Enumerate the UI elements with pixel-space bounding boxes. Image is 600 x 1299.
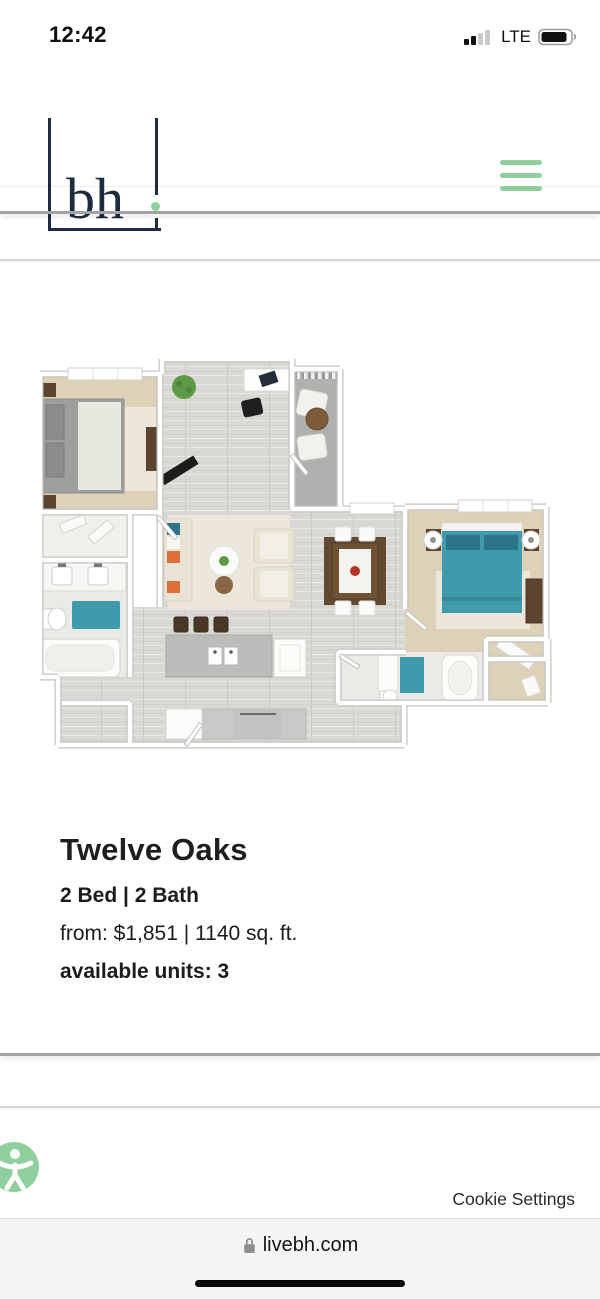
bar-stool [214, 617, 228, 632]
vanity [378, 655, 398, 691]
home-indicator[interactable] [195, 1280, 405, 1287]
logo-frame-corner [155, 218, 158, 231]
listing-beds-baths: 2 Bed | 2 Bath [60, 884, 199, 908]
accessibility-icon [0, 1142, 39, 1192]
section-divider [0, 259, 600, 261]
bathroom-1 [40, 563, 126, 677]
logo-frame-left [48, 118, 51, 231]
logo-green-dot [151, 202, 160, 211]
section-divider [0, 211, 600, 214]
lock-icon [242, 1236, 257, 1255]
clock-time: 12:42 [49, 22, 107, 48]
plant [172, 375, 196, 399]
section-divider [0, 1106, 600, 1108]
logo-text: bh [66, 170, 124, 228]
brand-logo[interactable]: bh [44, 114, 166, 236]
signal-strength-icon [464, 28, 494, 46]
floorplan-graphic [40, 359, 548, 746]
hamburger-icon [500, 160, 542, 165]
section-divider [0, 1053, 600, 1056]
bar-stool [174, 617, 188, 632]
listing-availability: available units: 3 [60, 960, 229, 984]
bar-stool [194, 617, 208, 632]
toilet [48, 608, 66, 630]
cookie-settings-link[interactable]: Cookie Settings [452, 1189, 575, 1210]
bath-rug-teal [72, 601, 120, 629]
pouf [215, 576, 233, 594]
url-bar[interactable]: livebh.com [0, 1234, 600, 1257]
bath-rug-teal [400, 657, 424, 693]
floor-plan-container [38, 357, 565, 753]
bedroom-2 [424, 523, 543, 629]
status-icons: LTE [464, 27, 578, 47]
listing-price-size: from: $1,851 | 1140 sq. ft. [60, 922, 297, 946]
centerpiece [350, 566, 360, 576]
network-type-label: LTE [501, 27, 531, 47]
dresser [526, 579, 543, 623]
logo-frame-right [155, 118, 158, 195]
accessibility-button[interactable] [0, 1142, 39, 1192]
url-text: livebh.com [263, 1234, 359, 1257]
floor-plan-image[interactable] [38, 357, 565, 753]
dining-area [324, 527, 386, 615]
patio-table [306, 408, 328, 430]
listing-title: Twelve Oaks [60, 832, 248, 868]
menu-button[interactable] [498, 157, 544, 197]
site-header: bh [0, 56, 600, 187]
battery-icon [538, 28, 578, 46]
